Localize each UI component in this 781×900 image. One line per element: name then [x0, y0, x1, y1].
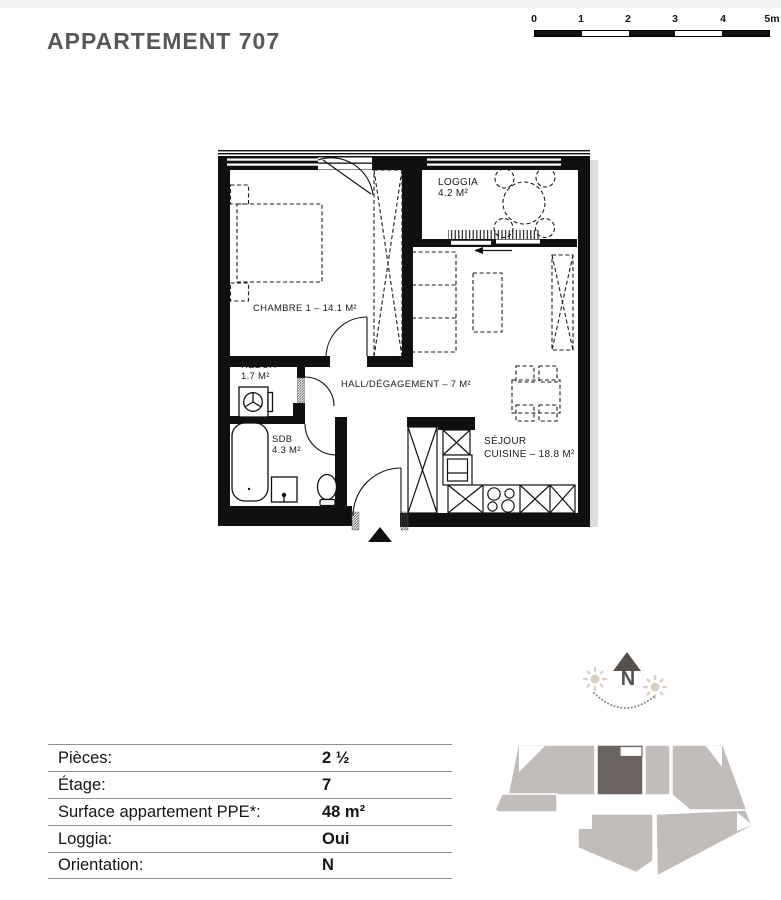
- wardrobe-icon: [552, 255, 573, 350]
- wall-shadow: [590, 160, 598, 527]
- row-label: Surface appartement PPE*:: [48, 803, 322, 822]
- row-label: Étage:: [48, 776, 322, 795]
- entrance-marker-icon: [368, 527, 392, 542]
- row-label: Pièces:: [48, 749, 322, 768]
- footprint-loggia-marker: [620, 747, 642, 757]
- bedroom-door-arc: [326, 317, 367, 357]
- nightstand-icon: [231, 185, 249, 204]
- footprint-unit: [495, 794, 557, 812]
- row-value: Oui: [322, 830, 350, 849]
- table-row: Surface appartement PPE*: 48 m²: [48, 798, 452, 825]
- table-row: Étage: 7: [48, 771, 452, 798]
- table-row: Pièces: 2 ½: [48, 744, 452, 771]
- apartment-details-table: Pièces: 2 ½ Étage: 7 Surface appartement…: [48, 744, 452, 879]
- toilet-icon: [318, 475, 337, 500]
- loggia-table-icon: [494, 168, 555, 238]
- nightstand-icon: [231, 283, 249, 301]
- room-label-reduit: REDUIT 1.7 M²: [241, 360, 278, 382]
- entrance-door-arc: [353, 468, 401, 516]
- row-label: Orientation:: [48, 856, 322, 875]
- floor-plan-drawing: [200, 135, 610, 550]
- compass-north-label: N: [616, 668, 640, 691]
- floorplan-page: { "header": { "title": "APPARTEMENT 707"…: [0, 0, 781, 900]
- door-swings: [305, 158, 401, 516]
- reduit-door-arc: [305, 377, 334, 406]
- coffee-table-icon: [473, 273, 502, 332]
- dining-set-icon: [512, 366, 560, 421]
- sun-icon: [644, 676, 666, 698]
- row-label: Loggia:: [48, 830, 322, 849]
- wardrobe-icon: [374, 170, 402, 357]
- walls: [218, 150, 590, 527]
- row-value: 2 ½: [322, 749, 350, 768]
- room-label-sejour: SÉJOUR CUISINE – 18.8 M²: [484, 435, 575, 461]
- bed-icon: [237, 204, 322, 282]
- sun-icon: [584, 668, 606, 690]
- table-row: Loggia: Oui: [48, 825, 452, 852]
- sofa-icon: [412, 252, 456, 352]
- room-label-loggia: LOGGIA 4.2 M²: [438, 177, 478, 199]
- row-value: N: [322, 856, 334, 875]
- bathroom-door-arc: [305, 424, 336, 455]
- building-footprint: [488, 737, 760, 887]
- table-row: Orientation: N: [48, 852, 452, 879]
- slide-direction-arrow-icon: [474, 247, 483, 254]
- footprint-unit: [645, 745, 670, 795]
- room-label-sdb: SDB 4.3 M²: [272, 434, 301, 456]
- row-value: 48 m²: [322, 803, 365, 822]
- room-label-chambre: CHAMBRE 1 – 14.1 M²: [253, 303, 357, 314]
- footprint-unit: [672, 745, 747, 810]
- room-label-hall: HALL/DÉGAGEMENT – 7 M²: [341, 379, 471, 390]
- row-value: 7: [322, 776, 331, 795]
- washing-machine-icon: [239, 387, 273, 417]
